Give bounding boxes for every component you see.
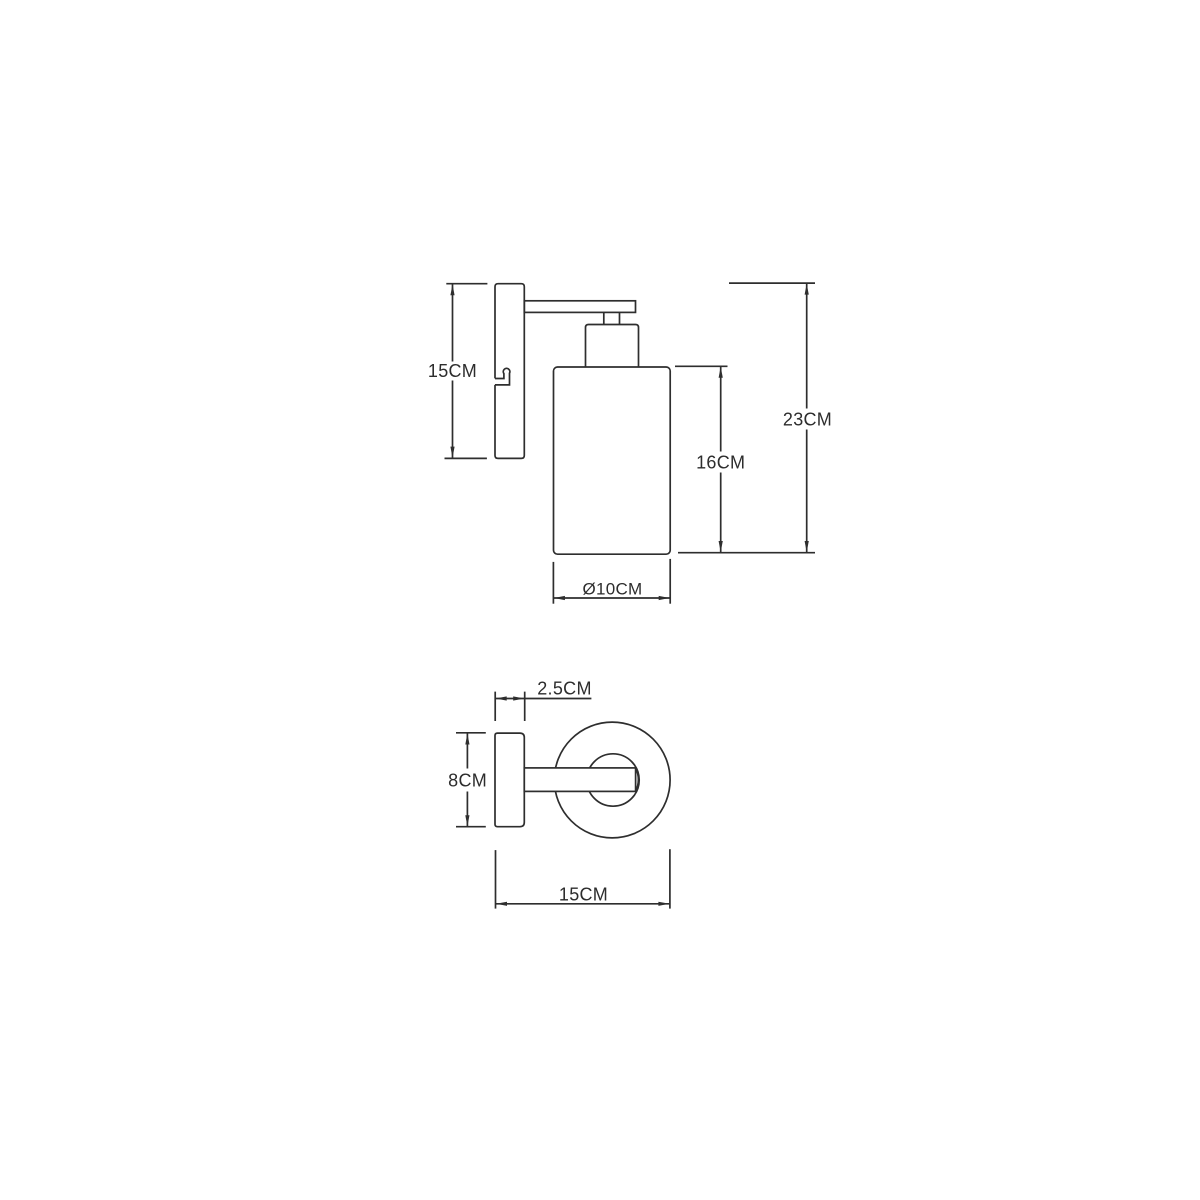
svg-text:8CM: 8CM: [448, 770, 487, 790]
svg-text:16CM: 16CM: [696, 453, 745, 473]
svg-text:23CM: 23CM: [783, 410, 832, 430]
svg-text:2.5CM: 2.5CM: [537, 679, 592, 699]
svg-text:15CM: 15CM: [559, 885, 608, 905]
svg-text:Ø10CM: Ø10CM: [582, 580, 642, 599]
svg-text:15CM: 15CM: [428, 361, 477, 381]
